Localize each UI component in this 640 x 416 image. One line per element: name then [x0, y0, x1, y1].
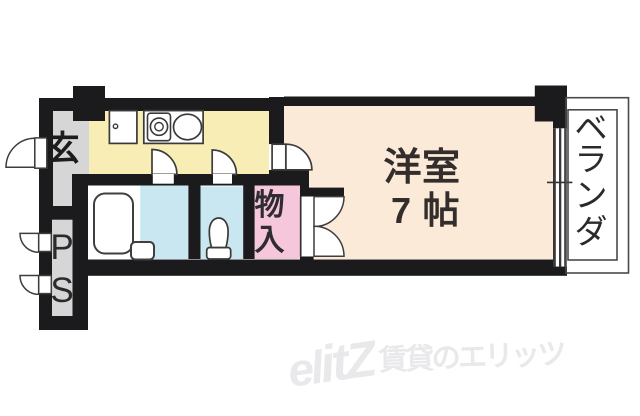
svg-text:S: S [50, 271, 73, 310]
svg-text:帖: 帖 [423, 190, 460, 231]
svg-text:賃貸のエリッツ: 賃貸のエリッツ [377, 338, 565, 378]
svg-text:ダ: ダ [575, 213, 608, 250]
svg-text:入: 入 [255, 224, 285, 257]
svg-text:ラ: ラ [575, 141, 608, 178]
svg-text:P: P [50, 228, 73, 267]
svg-text:洋室: 洋室 [383, 147, 460, 189]
svg-text:7: 7 [391, 190, 411, 231]
svg-text:ン: ン [575, 177, 608, 214]
svg-text:物: 物 [255, 189, 285, 222]
svg-text:玄: 玄 [46, 130, 80, 168]
